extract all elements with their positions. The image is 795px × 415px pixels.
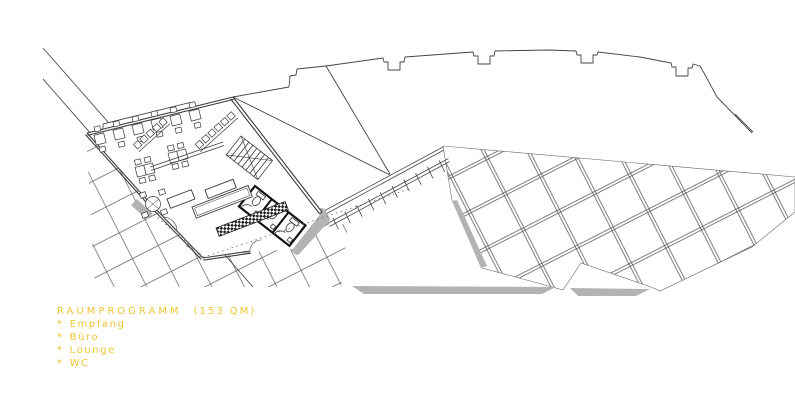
band-left-edge [233,87,289,97]
band-split-line [326,66,390,174]
legend-title-row: RAUMPROGRAMM(153 QM) [57,305,256,318]
legend-bullet: * [57,358,64,369]
band-tip-line [735,114,753,132]
portfolio-page: RAUMPROGRAMM(153 QM) *Empfang *Büro *Lou… [0,0,795,415]
legend-item-wc: *WC [57,357,256,370]
room-program-legend: RAUMPROGRAMM(153 QM) *Empfang *Büro *Lou… [57,305,256,370]
legend-item-label: WC [70,358,90,369]
shadow-ramp-long [352,286,556,294]
legend-item-buero: *Büro [57,331,256,344]
legend-bullet: * [57,319,64,330]
tile-grid-right [443,146,795,291]
legend-item-empfang: *Empfang [57,318,256,331]
legend-item-label: Lounge [70,345,116,356]
legend-bullet: * [57,332,64,343]
shadow-ramp-right [570,288,650,296]
legend-bullet: * [57,345,64,356]
legend-item-lounge: *Lounge [57,344,256,357]
legend-title: RAUMPROGRAMM [57,306,182,317]
legend-item-label: Empfang [70,319,126,330]
legend-item-label: Büro [70,332,100,343]
legend-area: (153 QM) [194,306,257,317]
tile-strip [322,147,450,230]
